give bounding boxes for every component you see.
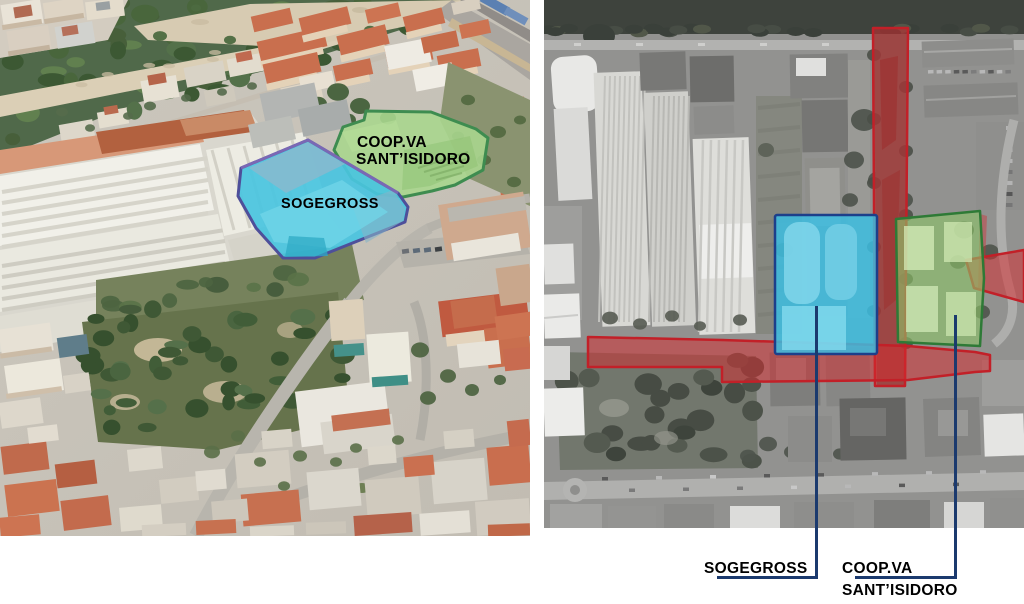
svg-text:SANT’ISIDORO: SANT’ISIDORO	[356, 151, 470, 168]
svg-text:SOGEGROSS: SOGEGROSS	[281, 196, 379, 212]
svg-text:COOP.VA: COOP.VA	[357, 134, 427, 151]
